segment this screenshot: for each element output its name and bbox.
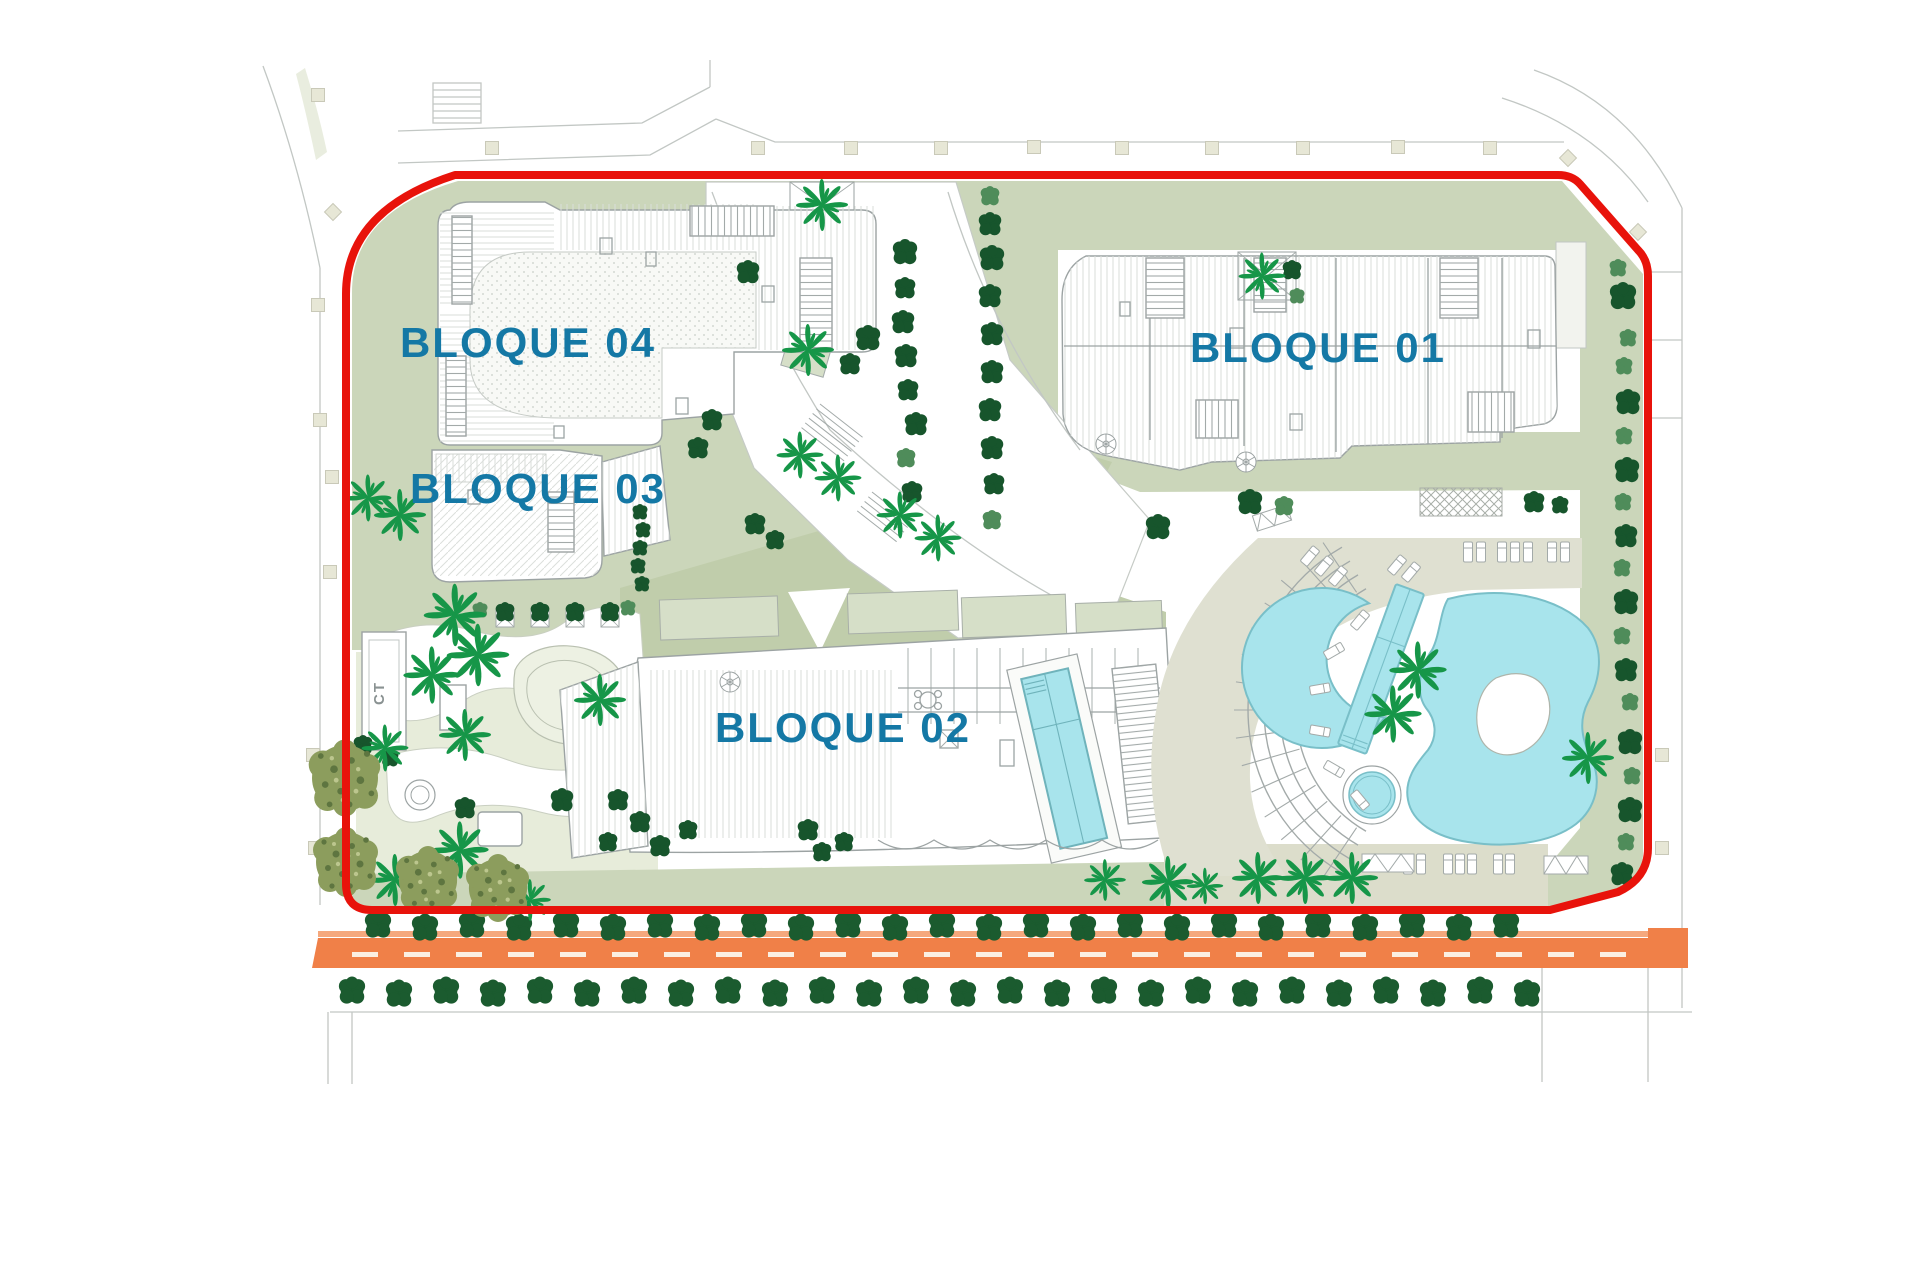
site-plan: CT [0,0,1920,1280]
bloque-03-label: BLOQUE 03 [410,465,666,512]
bloque-01-label: BLOQUE 01 [1190,324,1446,371]
bloque-02-label: BLOQUE 02 [715,704,971,751]
bloque-04-label: BLOQUE 04 [400,319,656,366]
lagoon-pool [1407,593,1599,845]
pool-complex [1151,488,1599,877]
utility-box-label: CT [371,681,388,705]
